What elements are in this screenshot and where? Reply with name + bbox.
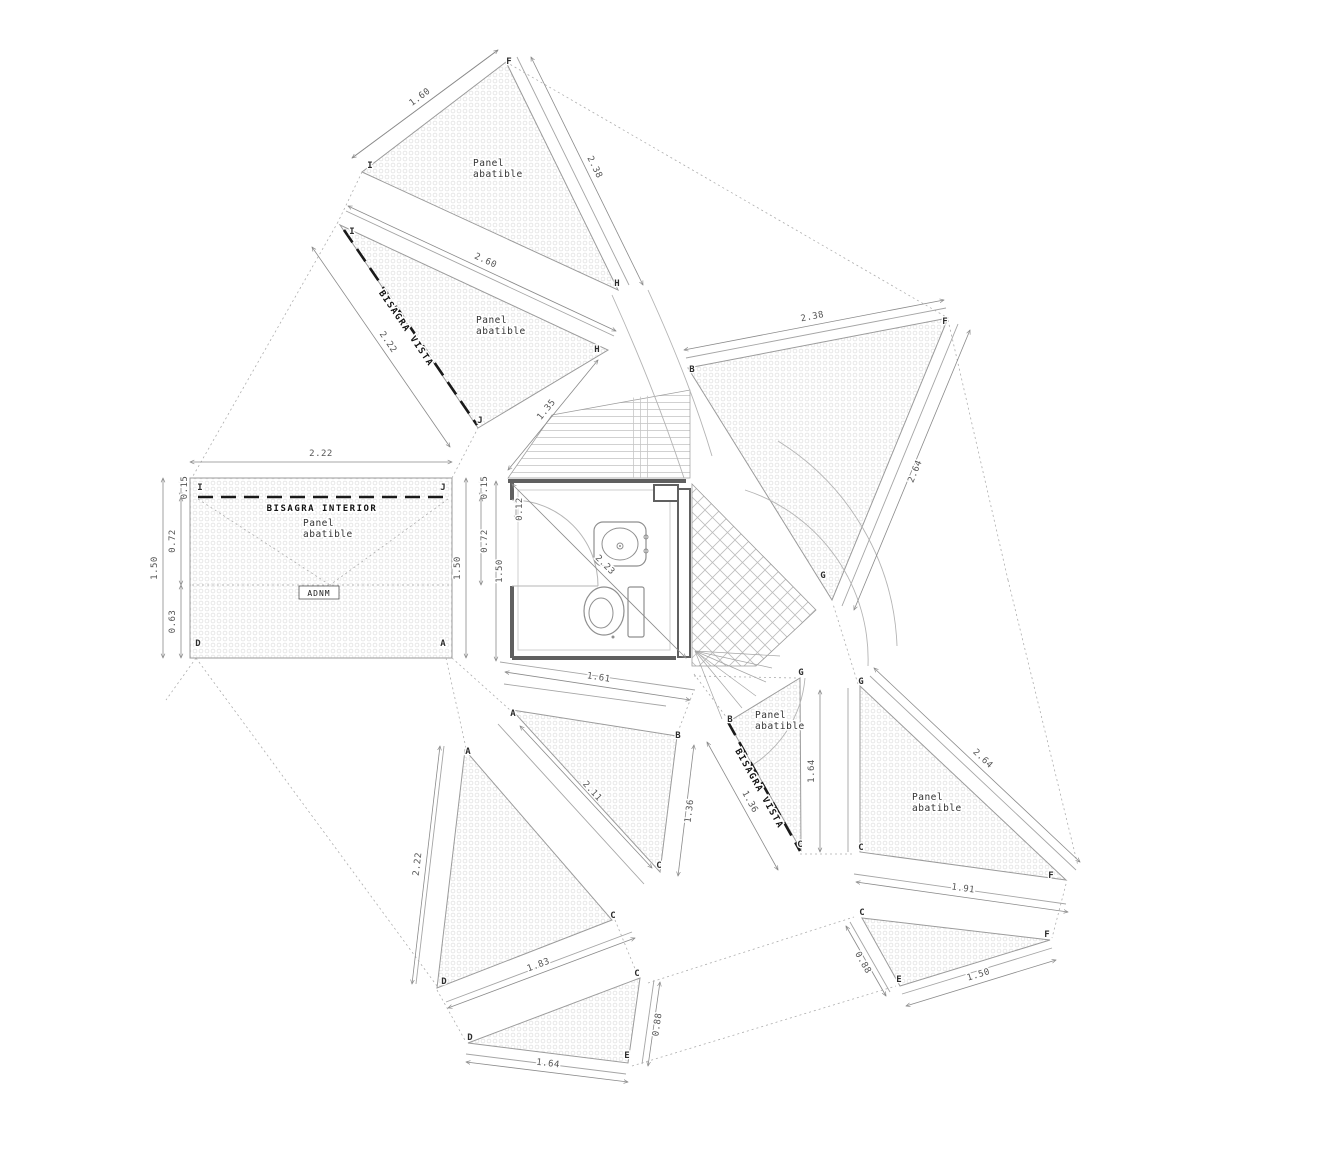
dimension-label: 1.50 [150,556,160,580]
dimension: 1.36 [678,745,696,876]
construction-dotted-line [833,604,858,684]
sink-basin [602,528,638,560]
dimension-label: 0.15 [480,476,490,500]
construction-dotted-line [196,658,437,986]
vertex-letter: C [634,969,639,979]
vertex-letter: G [820,571,825,581]
construction-dotted-line [446,658,466,748]
dimension: 0.72 [168,497,181,585]
dimension: 1.91 [856,882,1068,912]
dimension-label: 2.64 [970,747,994,771]
dimension-label: 1.64 [807,759,817,783]
vertex-letter: I [367,161,372,171]
dimension-label: 2.22 [412,852,425,877]
toilet-flush-dot [612,636,615,639]
dimension: 0.15 [480,476,490,500]
construction-dotted-line [694,676,796,678]
vertex-letter: F [1044,930,1049,940]
vertex-letter: D [467,1033,473,1043]
dimension-label: 0.72 [168,529,178,553]
vertex-letter: F [506,57,511,67]
construction-dotted-line [615,920,638,976]
vertex-letter: G [798,668,803,678]
vertex-letter: B [689,365,695,375]
deck-hatch-vertical [630,395,654,478]
dimension-label: 1.60 [408,87,433,109]
dimension-label: 1.91 [951,882,976,895]
wall-niche [654,485,678,501]
dimension-label: 0.12 [515,497,525,521]
dimension-label: 2.38 [800,310,825,324]
dimension: 1.50 [495,481,505,661]
dimension-label: 0.63 [168,610,178,634]
strip-edge-line [642,980,654,1064]
strip-edge-line [504,684,666,706]
vertex-letter: J [440,483,445,493]
toilet-tank [628,587,644,637]
panel-right-lower-hatch [860,686,1066,880]
panel-bottom-right-hatch [862,918,1050,986]
construction-dotted-line [676,690,694,737]
dimension-label: 1.50 [495,559,505,583]
dimension-label: 1.83 [526,957,552,975]
vertex-letter: D [195,639,201,649]
dimension-label: 0.15 [180,476,190,500]
vertex-letter: F [1048,871,1053,881]
dimension-label: 0.88 [651,1012,664,1037]
construction-dotted-line [452,428,478,478]
vertex-letter: C [859,908,864,918]
dimension: 0.63 [168,585,181,658]
dimension-label: 1.64 [536,1058,561,1071]
dimension-label: 2.60 [473,252,499,271]
vertex-letter: A [440,639,446,649]
construction-dotted-line [452,658,510,710]
dimension: 1.64 [807,690,820,852]
vertex-letter: C [858,843,863,853]
construction-dotted-line [166,658,196,700]
dimension-label: 2.22 [309,449,333,459]
dimension: 0.72 [480,497,490,585]
dimension-label: 2.23 [593,553,617,577]
bisagra-interior-label: BISAGRA INTERIOR [267,504,378,514]
dimension-label: 1.36 [684,799,697,824]
deck-hatch-horizontal [508,390,690,478]
bathroom-right-wall-bar [678,489,690,657]
construction-dotted-line [948,320,1008,580]
dimension: 2.22 [412,746,440,984]
dimension: 2.22 [190,449,452,462]
vertex-letter: G [858,677,863,687]
vertex-letter: E [896,975,901,985]
construction-dotted-line [506,62,948,318]
vertex-letter: I [197,483,202,493]
vertex-letter: H [614,279,619,289]
vertex-letter: J [477,416,482,426]
vertex-letter: C [797,840,802,850]
dimension-label: 2.38 [584,155,603,181]
dimension: 0.12 [515,497,525,521]
dimension-label: 0.88 [852,950,872,976]
vertex-letter: I [349,227,354,237]
construction-dotted-line [437,990,466,1042]
sink-drain-dot [619,545,621,547]
vertex-letter: C [610,911,615,921]
vertex-letter: E [624,1051,629,1061]
vertex-letter: A [510,709,516,719]
dimension-label: 1.50 [453,556,463,580]
vertex-letter: F [942,317,947,327]
vertex-letter: B [675,731,681,741]
vertex-letter: A [465,747,471,757]
construction-dotted-line [338,172,362,222]
dimension: 1.64 [466,1058,628,1082]
dimension: 0.88 [648,982,665,1066]
dimension-label: 1.61 [586,671,611,684]
vertex-letter: B [727,715,733,725]
construction-dotted-line [694,674,727,718]
construction-dotted-line [648,917,854,983]
vertex-letter: H [594,345,599,355]
dimension-label: 2.64 [907,459,925,485]
dimension-label: 0.72 [480,529,490,553]
construction-dotted-line [632,986,896,1066]
unfolded-panels-plan: 1.602.382.602.221.352.221.500.150.720.63… [0,0,1333,1156]
dimension: 1.50 [150,478,163,658]
dimension: 0.15 [180,476,190,500]
dimension-label: 2.22 [377,330,399,355]
construction-dotted-line [1008,580,1078,866]
tag-label: ADNM [307,589,330,598]
vertex-letter: C [656,861,661,871]
dimension: 1.50 [453,478,466,658]
construction-dotted-line [193,222,338,476]
vertex-letter: D [441,977,447,987]
